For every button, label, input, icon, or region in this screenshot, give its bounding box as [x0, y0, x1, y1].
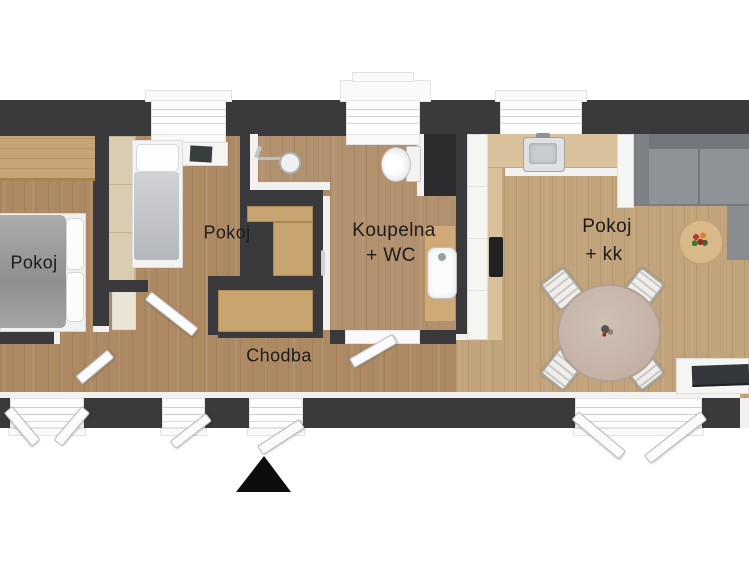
sofa-chaise — [727, 204, 749, 260]
flower-bowl — [690, 230, 710, 250]
desk-monitor — [190, 145, 213, 162]
wall-bedrooms-divider-end — [93, 326, 109, 332]
bottom-wall-segment-b — [84, 398, 162, 428]
room-label-bedroom-left: Pokoj — [10, 253, 57, 274]
hallway-cabinet-bottom-lip — [218, 332, 313, 338]
bed-pillow-2 — [66, 272, 84, 322]
cabinet-zone-left-stub — [208, 283, 218, 335]
fridge-unit — [617, 134, 634, 208]
bottom-wall-segment-d — [303, 398, 575, 428]
top-wall-segment-a — [0, 100, 151, 136]
bedroom-middle-bottom-wall — [109, 280, 148, 292]
wall-bedrooms-divider — [93, 136, 109, 332]
bathroom-window-sill — [346, 134, 420, 145]
bedroom-left-doorjamb — [54, 330, 60, 344]
storage-cabinet-b — [273, 222, 313, 276]
bed-pillow-1 — [66, 218, 84, 270]
room-label-hallway: Chodba — [246, 346, 311, 367]
shower-niche-bottom-wall — [240, 190, 323, 206]
kitchen-cabinet-run — [467, 134, 488, 340]
room-label-living-line2: + kk — [586, 244, 623, 266]
cabinet-zone-band — [208, 276, 313, 290]
window-bathroom — [346, 100, 420, 136]
floor-plan: Pokoj Pokoj Koupelna + WC Chodba Pokoj +… — [0, 0, 749, 562]
bedroom-left-bottom-wall — [0, 330, 60, 344]
top-wall-segment-d — [582, 100, 749, 136]
tv — [692, 364, 749, 387]
bathroom-bottom-wall-right — [420, 330, 456, 344]
shower-niche-left-wall — [240, 134, 250, 190]
bathroom-bottom-wall-left — [330, 330, 345, 344]
bedroom-left-shelf — [0, 136, 95, 181]
kitchen-faucet — [536, 133, 550, 138]
bottom-wall-end-cap — [740, 398, 749, 428]
kitchen-sink-basin — [529, 143, 557, 164]
cabinet-zone-fill-2 — [247, 222, 273, 276]
sofa-backrest — [634, 134, 749, 149]
cooktop — [489, 237, 503, 277]
room-label-living-line1: Pokoj — [582, 216, 632, 238]
single-bed-pillow — [136, 144, 179, 172]
sofa-armrest — [634, 134, 649, 204]
single-bed-duvet — [134, 172, 179, 260]
entrance-arrow — [236, 456, 291, 492]
bottom-wall-segment-c — [205, 398, 249, 428]
bottom-wall-segment-e — [702, 398, 740, 428]
toilet-bowl — [381, 147, 411, 182]
top-wall-segment-b — [226, 100, 346, 136]
hallway-cabinet — [218, 290, 313, 332]
shower-niche-bottom-face — [250, 182, 330, 190]
window-bedroom-middle — [151, 100, 226, 136]
window-2-outer-sill-step — [352, 72, 414, 82]
storage-cabinet-a — [247, 206, 313, 222]
window-2-outer-sill — [340, 80, 431, 102]
window-kitchen — [500, 100, 582, 136]
room-label-bathroom-line1: Koupelna — [352, 220, 436, 242]
bathroom-faucet — [438, 253, 446, 261]
bathroom-towel-rail — [321, 250, 325, 276]
shower-head-icon — [279, 152, 301, 174]
room-label-bathroom-line2: + WC — [366, 245, 416, 267]
utility-shaft — [424, 134, 456, 196]
hallway-shoe-cabinet — [112, 292, 136, 330]
table-centerpiece — [598, 322, 616, 340]
room-label-bedroom-middle: Pokoj — [203, 223, 250, 244]
